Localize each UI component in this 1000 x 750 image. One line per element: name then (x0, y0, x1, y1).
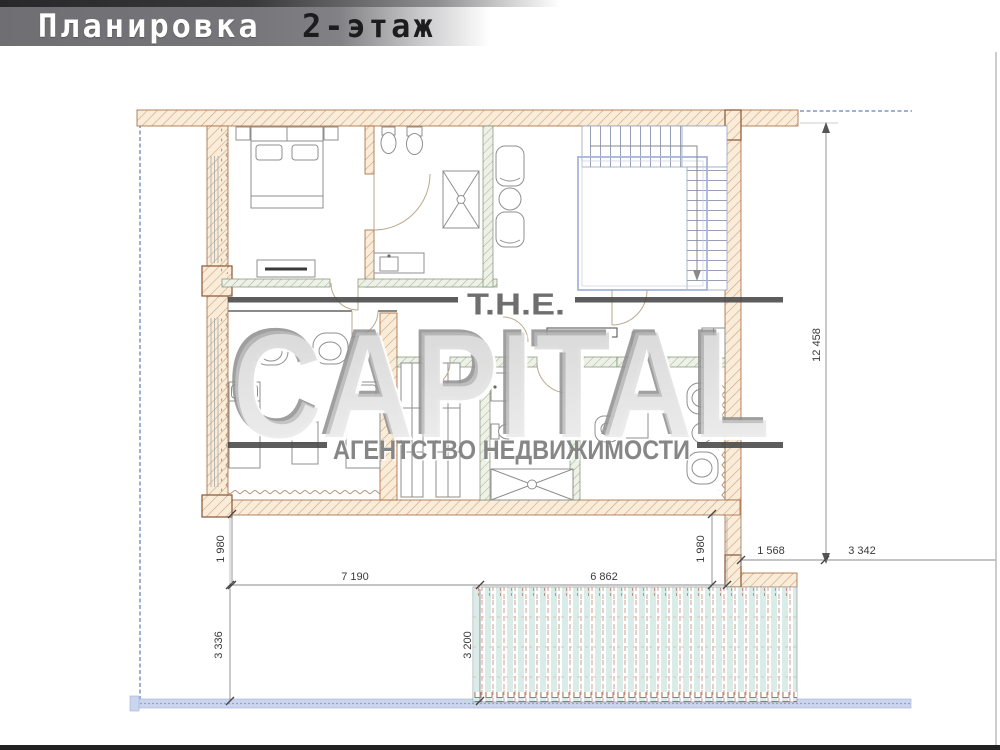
page-bottom-edge (0, 745, 1000, 750)
toilet (407, 134, 423, 155)
wall-east-step-leg (741, 573, 797, 587)
double-bed (251, 141, 323, 208)
dim-right-span: 3 342 (848, 545, 876, 557)
watermark-line-bottom-right (697, 442, 783, 448)
watermark: T.H.E. T.H.E. CAPITAL CAPITAL CAPITAL АГ… (227, 287, 783, 474)
stair-hall (496, 146, 524, 247)
dim-right-inset: 1 980 (695, 535, 707, 563)
terrace (473, 587, 797, 702)
hall-chair-2 (496, 212, 524, 247)
dim-left-inset: 1 980 (215, 535, 227, 563)
dim-terrace-span: 6 862 (590, 571, 618, 583)
bathroom-1 (374, 127, 479, 273)
pier-east-bottom (725, 555, 741, 587)
dim-left-depth: 3 336 (213, 631, 225, 659)
stair-void-inner (582, 161, 703, 286)
wall-bath1-east (483, 126, 493, 287)
hall-chair-1 (496, 146, 524, 186)
shower-drain (457, 196, 465, 204)
terrace-top-ticks (473, 588, 797, 596)
dim-terrace-depth: 3 200 (462, 631, 474, 659)
staircase (578, 126, 727, 290)
dim-arrow-top (822, 122, 830, 133)
terrace-decking (473, 587, 797, 702)
dim-left-span: 7 190 (341, 571, 369, 583)
terrace-bottom-posts (473, 692, 797, 702)
floor-plan-svg: 12 458 7 190 6 862 1 980 1 980 3 336 3 2 (0, 0, 1000, 750)
pier-west-bottom (202, 495, 232, 517)
insulation-bedroom2-south (228, 490, 380, 497)
boundary-corner-tab (130, 696, 139, 711)
screenshot: Планировка 2-этаж (0, 0, 1000, 750)
vanity-cabinet (374, 253, 424, 273)
wall-bedroom1-bath-divider-b (365, 230, 374, 287)
bathtub-drain (528, 480, 537, 489)
dim-overall-height: 12 458 (811, 328, 823, 362)
door-bathroom1 (374, 174, 430, 230)
watermark-agency: АГЕНТСТВО НЕДВИЖИМОСТИ (333, 435, 690, 465)
hall-chair-1-seat (500, 178, 520, 181)
nightstand-left (236, 127, 250, 140)
insulation-bedroom1-west (221, 128, 228, 274)
wall-south (207, 500, 740, 515)
bedroom-1 (236, 127, 338, 277)
vanity-tap (387, 254, 390, 257)
wall-north (137, 110, 798, 126)
wall-bedroom1-bath-divider-a (365, 126, 374, 174)
nightstand-right (324, 127, 338, 140)
watermark-line-bottom-left (228, 442, 327, 448)
hall-stool (499, 188, 521, 210)
dim-right-step: 1 568 (757, 545, 785, 557)
pier-east-top (725, 110, 741, 140)
hall-chair-2-seat (500, 240, 520, 243)
bidet (381, 133, 396, 154)
wall-bedroom1-south-a (222, 279, 330, 287)
